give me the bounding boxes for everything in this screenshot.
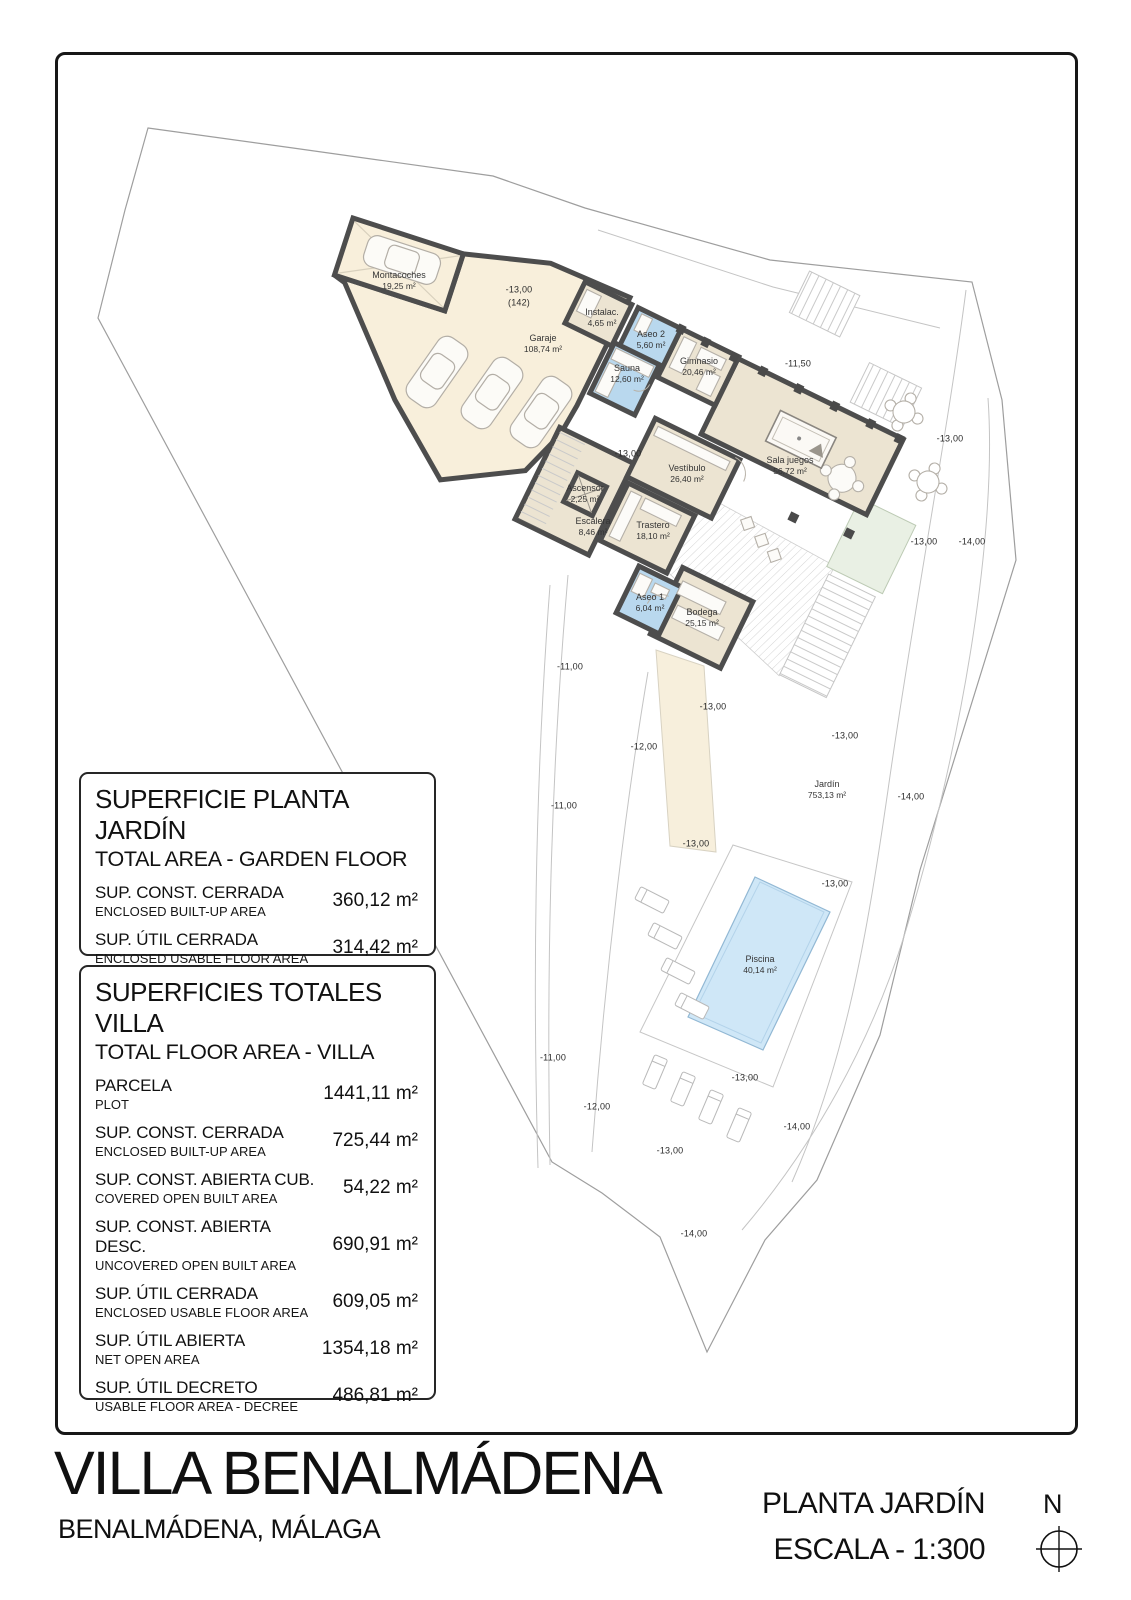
north-label: N	[1043, 1489, 1063, 1520]
plan-scale: ESCALA - 1:300	[774, 1533, 985, 1567]
room-label-sauna: Sauna12,60 m²	[610, 363, 644, 386]
elevation-label: -14,00	[681, 1228, 708, 1239]
table-villa-total-areas: SUPERFICIES TOTALES VILLA TOTAL FLOOR AR…	[79, 965, 436, 1400]
elevation-label: -12,00	[584, 1101, 611, 1112]
garden-path	[656, 650, 716, 852]
room-label-instalaciones: Instalac.4,65 m²	[585, 307, 619, 330]
project-title: VILLA BENALMÁDENA	[54, 1438, 661, 1508]
table-row: SUP. ÚTIL CERRADAENCLOSED USABLE FLOOR A…	[95, 1284, 418, 1320]
table-row: SUP. CONST. CERRADAENCLOSED BUILT-UP ARE…	[95, 883, 418, 919]
room-label-piscina: Piscina40,14 m²	[743, 954, 777, 977]
elevation-label: -11,00	[540, 1052, 566, 1063]
room-label-aseo-1: Aseo 16,04 m²	[636, 592, 665, 615]
room-label-sala-juegos: Sala juegos56,72 m²	[766, 455, 813, 478]
room-label-escalera: Escalera8,46 m²	[575, 516, 610, 539]
table-row: SUP. CONST. ABIERTA CUB.COVERED OPEN BUI…	[95, 1170, 418, 1206]
table-row: PARCELAPLOT 1441,11 m²	[95, 1076, 418, 1112]
elevation-label: -13,00	[683, 838, 710, 849]
room-label-vestibulo: Vestíbulo26,40 m²	[668, 463, 705, 486]
table-row: SUP. ÚTIL ABIERTANET OPEN AREA 1354,18 m…	[95, 1331, 418, 1367]
drawing-sheet: Montacoches19,25 m² Garaje108,74 m² Inst…	[0, 0, 1131, 1600]
table-subtitle: TOTAL FLOOR AREA - VILLA	[95, 1040, 418, 1065]
room-label-aseo-2: Aseo 25,60 m²	[637, 329, 666, 352]
elevation-label: -13,00	[506, 284, 533, 295]
elevation-label: -13,00	[911, 536, 938, 547]
plan-name: PLANTA JARDÍN	[762, 1487, 985, 1521]
room-label-ascensor: Ascensor2,25 m²	[566, 483, 604, 506]
table-row: SUP. CONST. CERRADAENCLOSED BUILT-UP ARE…	[95, 1123, 418, 1159]
table-subtitle: TOTAL AREA - GARDEN FLOOR	[95, 847, 418, 872]
table-row: SUP. ÚTIL CERRADAENCLOSED USABLE FLOOR A…	[95, 930, 418, 966]
room-label-gimnasio: Gimnasio20,46 m²	[680, 356, 718, 379]
room-label-garaje: Garaje108,74 m²	[524, 333, 562, 356]
project-location: BENALMÁDENA, MÁLAGA	[58, 1514, 380, 1545]
table-garden-floor-areas: SUPERFICIE PLANTA JARDÍN TOTAL AREA - GA…	[79, 772, 436, 956]
room-label-montacoches: Montacoches19,25 m²	[372, 270, 426, 293]
elevation-label: -11,50	[785, 358, 811, 369]
north-compass-icon	[1033, 1523, 1085, 1575]
elevation-label: -13,00	[615, 448, 642, 459]
room-label-bodega: Bodega25,15 m²	[685, 607, 719, 630]
table-title: SUPERFICIES TOTALES VILLA	[95, 977, 418, 1039]
elevation-label: -12,00	[631, 741, 658, 752]
elevation-label: -14,00	[898, 791, 925, 802]
elevation-label: -13,00	[700, 701, 727, 712]
elevation-label: -14,00	[784, 1121, 811, 1132]
room-label-trastero: Trastero18,10 m²	[636, 520, 670, 543]
elevation-label: -11,00	[551, 800, 577, 811]
elevation-label: -13,00	[657, 1145, 684, 1156]
table-row: SUP. ÚTIL DECRETOUSABLE FLOOR AREA - DEC…	[95, 1378, 418, 1414]
elevation-label: -11,00	[557, 661, 583, 672]
elevation-label: -14,00	[959, 536, 986, 547]
elevation-label: -13,00	[822, 878, 849, 889]
elevation-label: -13,00	[732, 1072, 759, 1083]
room-label-jardin: Jardín753,13 m²	[808, 779, 846, 802]
elevation-label: (142)	[508, 297, 530, 308]
table-title: SUPERFICIE PLANTA JARDÍN	[95, 784, 418, 846]
elevation-label: -13,00	[937, 433, 964, 444]
table-row: SUP. CONST. ABIERTA DESC.UNCOVERED OPEN …	[95, 1217, 418, 1273]
elevation-label: -13,00	[832, 730, 859, 741]
